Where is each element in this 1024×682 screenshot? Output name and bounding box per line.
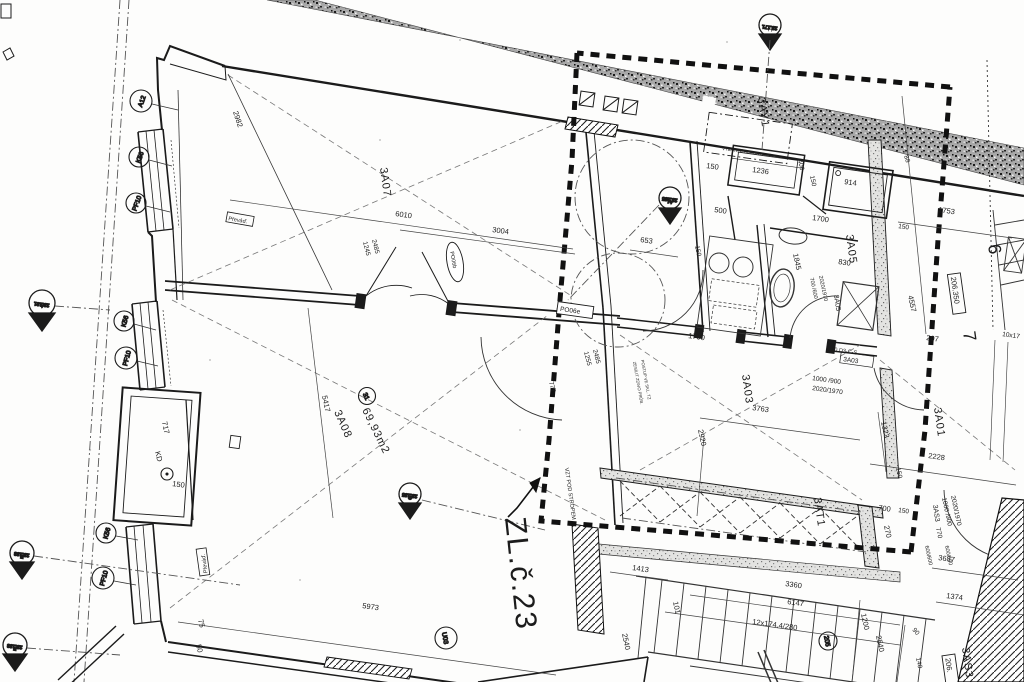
dim-207: 207 [926, 333, 940, 344]
floor-plan-page: 23.171 H 23.185 A1 23.185 G 23.181 A [0, 0, 1024, 682]
hatched-wall-west [572, 524, 604, 634]
dim-830: 830 [838, 257, 852, 268]
dim-150-b: 150 [706, 161, 720, 172]
dim-914: 914 [844, 177, 858, 188]
marker-a1-letter: A1 [666, 198, 673, 205]
dim-500: 500 [714, 205, 728, 216]
dim-700-b: 700 [878, 503, 892, 514]
dim-150-kd: 150 [172, 479, 186, 490]
floor-plan-drawing: 23.171 H 23.185 A1 23.185 G 23.181 A [0, 0, 1024, 682]
dim-653: 653 [640, 235, 654, 246]
